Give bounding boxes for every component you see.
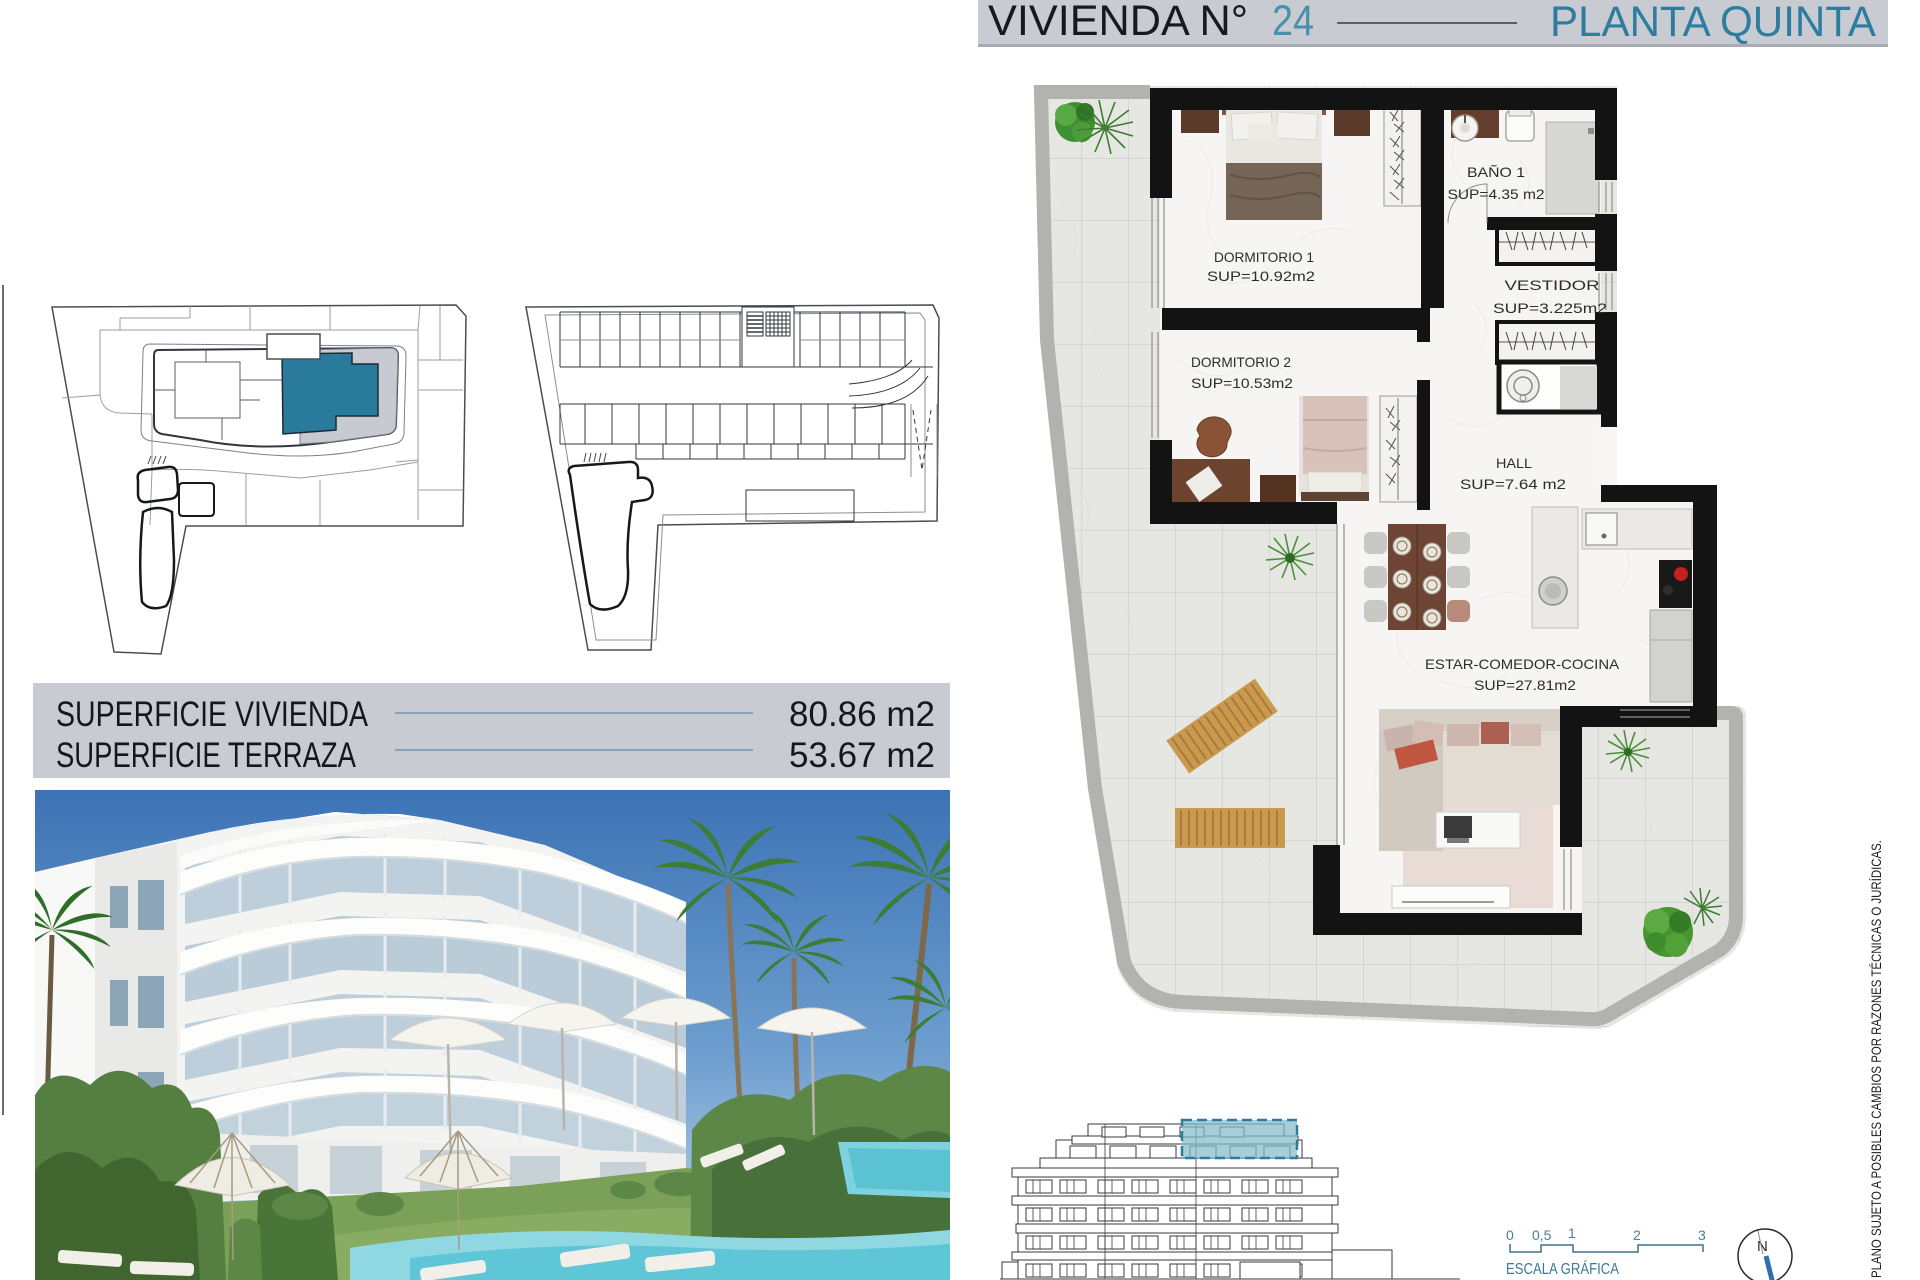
svg-text:DORMITORIO 2: DORMITORIO 2 [1191,354,1291,370]
svg-text:1: 1 [1568,1225,1576,1241]
svg-text:3: 3 [1698,1227,1706,1243]
svg-text:0: 0 [1506,1227,1514,1243]
svg-text:2: 2 [1633,1227,1641,1243]
svg-text:53.67 m2: 53.67 m2 [789,736,935,775]
svg-text:SUPERFICIE TERRAZA: SUPERFICIE TERRAZA [56,736,357,775]
svg-text:80.86 m2: 80.86 m2 [789,695,935,734]
svg-text:SUP=4.35 m2: SUP=4.35 m2 [1448,186,1545,202]
svg-text:HALL: HALL [1496,455,1532,471]
svg-text:PLANO SUJETO A POSIBLES CAMBIO: PLANO SUJETO A POSIBLES CAMBIOS POR RAZO… [1869,840,1884,1278]
svg-text:SUP=3.225m2: SUP=3.225m2 [1493,300,1607,316]
svg-text:DORMITORIO 1: DORMITORIO 1 [1214,249,1314,265]
svg-text:BAÑO 1: BAÑO 1 [1467,164,1525,180]
svg-text:ESTAR-COMEDOR-COCINA: ESTAR-COMEDOR-COCINA [1425,656,1620,672]
svg-text:VIVIENDA N°: VIVIENDA N° [988,0,1248,45]
svg-text:SUPERFICIE VIVIENDA: SUPERFICIE VIVIENDA [56,695,369,734]
svg-text:SUP=10.53m2: SUP=10.53m2 [1191,375,1293,391]
svg-text:24: 24 [1272,0,1314,45]
svg-text:SUP=7.64 m2: SUP=7.64 m2 [1460,476,1566,492]
svg-text:VESTIDOR: VESTIDOR [1505,277,1600,293]
svg-text:0,5: 0,5 [1532,1227,1552,1243]
svg-text:SUP=10.92m2: SUP=10.92m2 [1207,268,1315,284]
svg-text:SUP=27.81m2: SUP=27.81m2 [1474,677,1576,693]
svg-text:PLANTA QUINTA: PLANTA QUINTA [1550,0,1876,46]
svg-text:ESCALA GRÁFICA: ESCALA GRÁFICA [1506,1259,1619,1278]
